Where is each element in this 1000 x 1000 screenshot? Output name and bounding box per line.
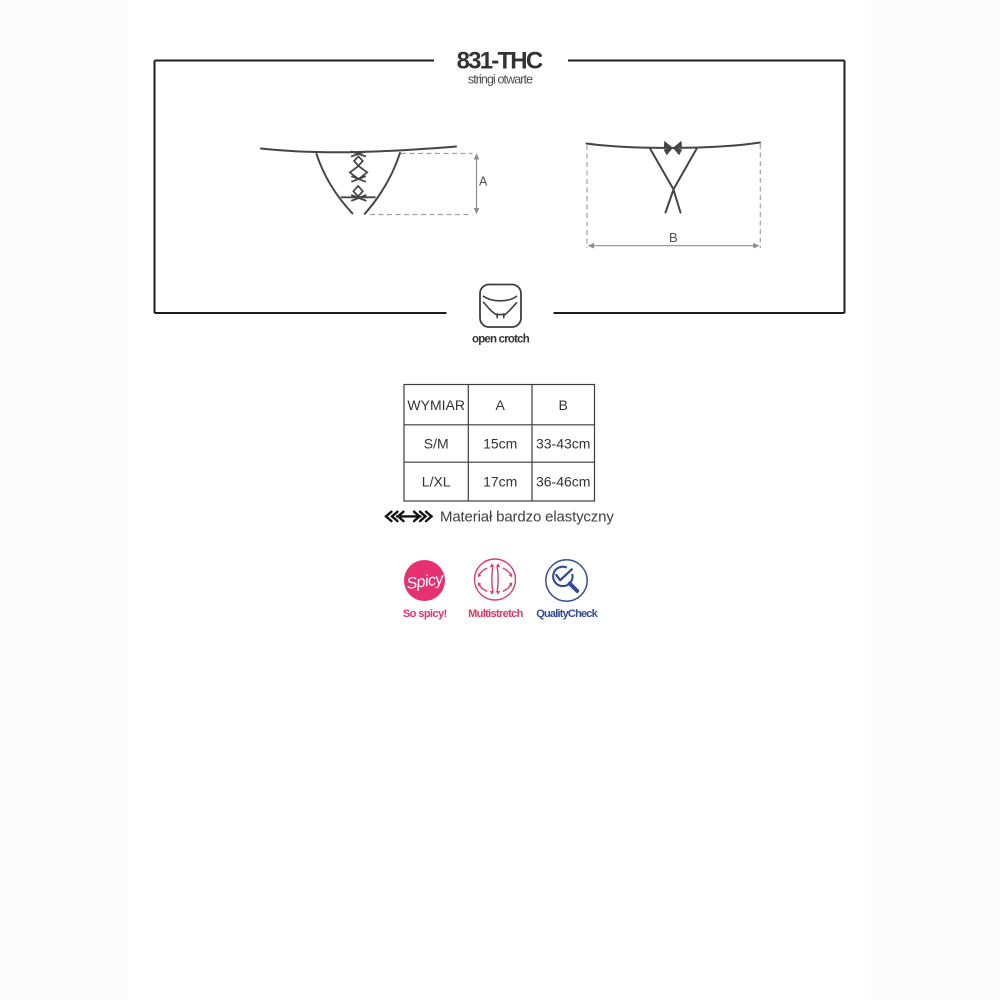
svg-text:36-46cm: 36-46cm bbox=[536, 474, 590, 490]
svg-text:So spicy!: So spicy! bbox=[403, 608, 447, 620]
svg-text:WYMIAR: WYMIAR bbox=[407, 397, 465, 413]
svg-text:open crotch: open crotch bbox=[472, 334, 530, 346]
svg-text:17cm: 17cm bbox=[483, 474, 517, 490]
svg-text:B: B bbox=[559, 397, 568, 413]
svg-text:831-THC: 831-THC bbox=[457, 48, 543, 75]
svg-text:Materiał bardzo elastyczny: Materiał bardzo elastyczny bbox=[440, 509, 614, 526]
svg-text:15cm: 15cm bbox=[483, 436, 517, 452]
svg-text:S/M: S/M bbox=[424, 436, 449, 452]
svg-text:33-43cm: 33-43cm bbox=[536, 436, 590, 452]
svg-text:QualityCheck: QualityCheck bbox=[536, 608, 598, 620]
svg-text:B: B bbox=[669, 230, 678, 245]
svg-text:A: A bbox=[479, 175, 488, 189]
svg-text:stringi otwarte: stringi otwarte bbox=[468, 73, 533, 87]
svg-text:L/XL: L/XL bbox=[422, 474, 451, 490]
svg-text:A: A bbox=[496, 397, 506, 413]
svg-text:Multistretch: Multistretch bbox=[468, 608, 523, 620]
